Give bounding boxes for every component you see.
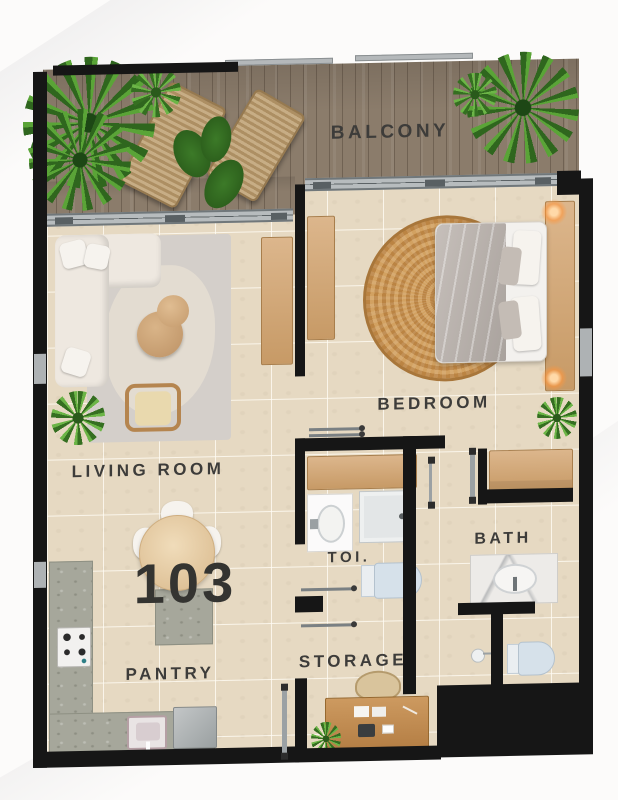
chair-cushion — [135, 391, 171, 426]
toilet-sink-unit — [307, 493, 353, 552]
slider-bracket — [165, 215, 185, 222]
slider-bracket — [271, 213, 287, 220]
toilet-tank — [361, 565, 375, 597]
headboard — [545, 201, 575, 392]
wall-segment — [295, 596, 323, 613]
wall-segment — [437, 682, 593, 757]
room-label-toilet: TOI. — [328, 548, 371, 566]
bed — [435, 221, 547, 363]
toilet-cabinet — [307, 454, 417, 490]
room-label-pantry: PANTRY — [126, 663, 215, 685]
bath-vanity — [470, 553, 558, 605]
monstera-plant — [175, 115, 249, 211]
slider-bracket — [425, 179, 445, 186]
armchair — [125, 383, 181, 432]
duvet — [436, 223, 506, 362]
unit-number: 103 — [134, 549, 236, 616]
tv-console — [261, 237, 293, 366]
wall-segment — [295, 745, 441, 762]
wall-segment — [295, 184, 305, 376]
wall-segment — [33, 72, 47, 768]
kitchen-appliance — [173, 706, 217, 749]
door-jamb — [470, 451, 475, 501]
wall-segment — [579, 178, 593, 688]
floor-plan: BALCONY BEDROOM LIVING ROOM 103 PANTRY T… — [33, 50, 593, 774]
floor-plan-scene: BALCONY BEDROOM LIVING ROOM 103 PANTRY T… — [0, 0, 618, 800]
wall-segment — [557, 171, 581, 196]
wall-window — [580, 328, 592, 376]
slider-bracket — [535, 177, 551, 184]
wall-window — [34, 562, 46, 588]
laptop — [358, 724, 375, 737]
door-leaf — [429, 460, 432, 506]
room-label-balcony: BALCONY — [331, 120, 449, 144]
toilet-bowl — [518, 641, 555, 676]
balcony-top-window — [355, 53, 473, 61]
desk-item — [382, 724, 394, 733]
wall-segment — [478, 488, 573, 504]
paper — [372, 707, 386, 717]
bath-wardrobe — [489, 449, 573, 493]
pen — [402, 706, 417, 715]
wall-window — [34, 354, 46, 384]
wall-segment — [295, 438, 305, 544]
room-label-bath: BATH — [474, 530, 531, 549]
kitchen-sink — [127, 715, 167, 750]
sink-basin — [136, 722, 160, 741]
room-label-living-room: LIVING ROOM — [72, 459, 225, 482]
room-label-bedroom: BEDROOM — [377, 392, 490, 414]
paper — [354, 706, 369, 717]
bedroom-console — [307, 216, 335, 341]
faucet — [513, 577, 517, 591]
cooktop — [57, 627, 91, 668]
slider-bracket — [313, 182, 331, 189]
toilet — [507, 641, 555, 676]
slider-bracket — [55, 217, 73, 224]
door-jamb — [282, 687, 287, 757]
sink-basin — [317, 504, 345, 543]
wall-segment — [491, 612, 503, 690]
faucet — [310, 519, 318, 529]
room-label-storage: STORAGE — [299, 650, 407, 672]
